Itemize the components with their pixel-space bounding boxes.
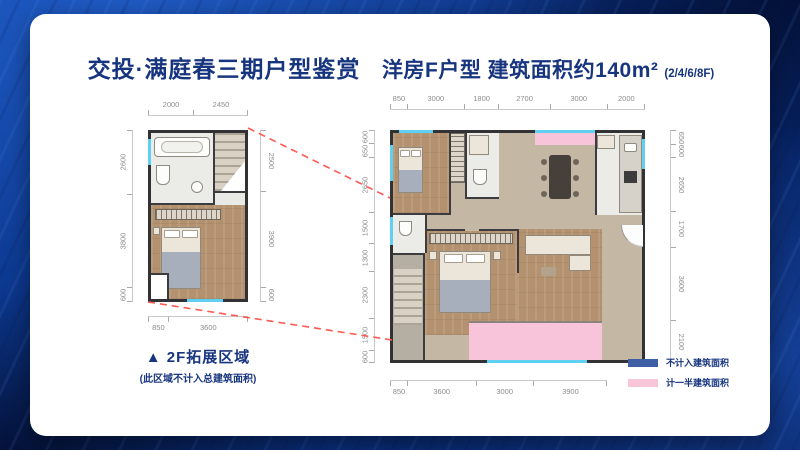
stairs [394,269,422,325]
wall-partition [425,229,465,231]
window [399,130,433,133]
chair [573,159,579,165]
dimension-segment: 2000 [148,110,193,115]
dimension-label: 650 [677,131,685,144]
legend-label: 不计入建筑面积 [666,356,729,369]
balcony-top [535,133,595,145]
dimension-segment: 3000 [550,104,607,109]
window [535,130,595,133]
pillow [466,254,485,263]
wall-partition [215,191,245,193]
dimension-label: 3600 [200,324,217,332]
dimension-label: 2650 [677,176,685,193]
dimension-label: 2100 [677,334,685,351]
wall-partition [423,255,425,360]
dimension-segment: 2500 [261,130,266,191]
dimension-label: 1800 [473,95,490,103]
dimension-label: 650 [361,144,369,157]
sofa [525,235,591,255]
dimension-label: 3000 [427,95,444,103]
toilet [473,169,487,185]
dimension-label: 600 [677,145,685,158]
dimension-segment: 2000 [607,104,645,109]
dimension-label: 3600 [433,388,450,396]
dimension-segment: 1800 [464,104,499,109]
fridge [597,135,615,149]
balcony-edge [469,321,602,323]
dimension-label: 2000 [163,101,180,109]
blanket [399,170,422,192]
wall-partition [465,197,499,199]
unit-title-floors: (2/4/6/8F) [664,68,714,80]
small-plan-dim-bottom: 8503600 [148,316,248,322]
bed [439,251,491,313]
dimension-label: 1700 [677,221,685,238]
dimension-label: 600 [119,288,127,301]
expansion-caption-note: (此区域不计入总建筑面积) [88,370,308,385]
balcony-bottom [469,323,602,360]
legend-label: 计一半建筑面积 [666,376,729,389]
expansion-caption: ▲ 2F拓展区域 (此区域不计入总建筑面积) [88,346,308,385]
dimension-segment: 2700 [498,104,549,109]
wardrobe [429,233,513,244]
nightstand [493,251,501,260]
dimension-label: 850 [393,95,406,103]
dimension-segment: 600 [369,130,374,143]
wall-partition [465,133,467,199]
wall-partition [479,229,519,231]
legend-item: 计一半建筑面积 [628,376,729,389]
wall-partition [393,213,451,215]
dimension-label: 1500 [361,220,369,237]
window [487,360,587,363]
dimension-label: 3000 [496,388,513,396]
small-plan-dim-right: 25003900600 [260,130,266,302]
dimension-segment: 2650 [671,157,676,211]
pillow [411,150,421,157]
dimension-segment: 1500 [369,318,374,349]
small-plan-dim-top: 20002450 [148,110,248,116]
dimension-label: 2000 [618,95,635,103]
dimension-label: 850 [152,324,165,332]
dimension-label: 3900 [562,388,579,396]
dimension-label: 2500 [267,153,275,170]
bathtub-basin [161,141,203,153]
pillow [444,254,463,263]
nightstand [153,227,160,235]
dimension-segment: 850 [390,104,407,109]
dimension-segment: 1500 [369,212,374,243]
dimension-segment: 600 [369,350,374,363]
dimension-segment: 3000 [476,381,533,386]
legend: 不计入建筑面积计一半建筑面积 [628,356,729,389]
small-plan-dim-left: 26003800600 [127,130,133,302]
dimension-segment: 850 [148,317,168,322]
dimension-label: 600 [267,288,275,301]
dimension-label: 1500 [361,326,369,343]
chair [541,175,547,181]
pillow [182,230,198,238]
dimension-label: 600 [361,131,369,144]
expansion-caption-title: ▲ 2F拓展区域 [88,346,308,367]
wall-notch [151,273,169,299]
main-floorplan [390,130,645,363]
wardrobe [155,209,221,220]
unit-title: 洋房F户型 建筑面积约140m² (2/4/6/8F) [382,54,714,84]
project-title: 交投·满庭春三期户型鉴赏 [68,50,380,84]
coffee-table [541,267,556,276]
dimension-segment: 3900 [261,191,266,286]
legend-swatch [628,379,658,387]
dimension-segment: 650 [671,130,676,144]
dimension-segment: 3600 [671,247,676,320]
dimension-label: 3600 [677,275,685,292]
dimension-segment: 1700 [671,211,676,246]
big-plan-dim-right: 6506002650170036002100 [670,130,676,363]
chair [573,175,579,181]
floorplan-card: 交投·满庭春三期户型鉴赏 洋房F户型 建筑面积约140m² (2/4/6/8F)… [30,14,770,436]
shower [469,135,489,155]
dimension-segment: 3000 [407,104,464,109]
dimension-segment: 3800 [127,194,132,287]
dimension-segment: 3600 [168,317,248,322]
dimension-segment: 2650 [369,157,374,212]
sink [191,181,203,193]
dimension-label: 2600 [119,154,127,171]
blanket [440,280,490,312]
dimension-segment: 2600 [127,130,132,194]
big-plan-dim-left: 60065026501500130023001500600 [369,130,375,363]
dimension-segment: 3900 [533,381,607,386]
dimension-label: 3800 [119,232,127,249]
big-plan-dim-top: 85030001800270030002000 [390,104,645,110]
window [390,217,393,245]
dimension-segment: 2300 [369,271,374,319]
wall-partition [517,231,519,273]
poster-background: 交投·满庭春三期户型鉴赏 洋房F户型 建筑面积约140m² (2/4/6/8F)… [0,0,800,450]
dimension-segment: 650 [369,143,374,157]
toilet [399,221,412,236]
kitchen-sink [624,143,637,152]
legend-item: 不计入建筑面积 [628,356,729,369]
stove [624,171,637,183]
closet [449,133,465,183]
window [642,139,645,169]
wall-partition [449,133,451,213]
wall-partition [425,215,427,253]
chair [573,191,579,197]
bed [398,147,423,193]
sofa-chaise [569,255,591,271]
window [187,299,223,302]
toilet [156,165,170,185]
dimension-label: 850 [393,388,406,396]
dimension-segment: 1300 [369,243,374,270]
dimension-segment: 600 [671,144,676,157]
dimension-label: 2700 [516,95,533,103]
small-floorplan [148,130,248,302]
unit-title-main: 洋房F户型 建筑面积约140m² [382,54,658,84]
window [390,145,393,181]
dimension-label: 3900 [267,231,275,248]
chair [541,159,547,165]
dimension-segment: 600 [261,287,266,302]
dining-table [549,155,571,199]
pillow [400,150,410,157]
nightstand [429,251,437,260]
wall-partition [595,133,597,215]
dimension-segment: 850 [390,381,407,386]
chair [541,191,547,197]
dimension-segment: 3600 [407,381,476,386]
dimension-label: 2450 [213,101,230,109]
dimension-label: 2300 [361,287,369,304]
entry-door-arc [621,225,643,247]
pillow [164,230,180,238]
wall-partition [393,253,425,255]
big-plan-dim-bottom: 850360030003900 [390,380,607,386]
dimension-label: 2650 [361,177,369,194]
window [148,139,151,165]
bathtub [154,137,210,157]
dimension-label: 1300 [361,249,369,266]
dimension-label: 3000 [570,95,587,103]
legend-swatch [628,359,658,367]
dimension-label: 600 [361,351,369,364]
dimension-segment: 600 [127,287,132,302]
dimension-segment: 2450 [193,110,248,115]
